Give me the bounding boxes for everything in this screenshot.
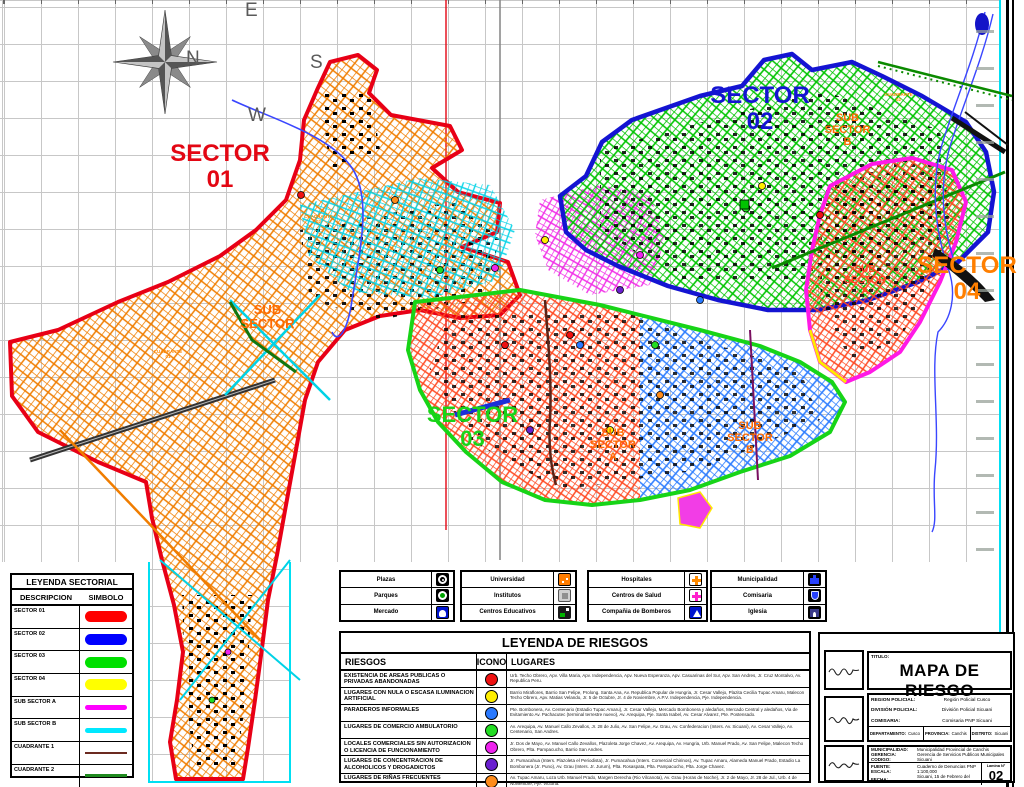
- plaza-icon: [432, 572, 453, 587]
- legend-row: SUB SECTOR B: [12, 719, 132, 742]
- risk-legend-title: LEYENDA DE RIESGOS: [341, 633, 809, 654]
- sector-02-symbol: [85, 634, 127, 645]
- col-riesgos: RIESGOS: [341, 654, 477, 669]
- col-icono: ICONO: [477, 654, 507, 669]
- legend-row: SECTOR 01: [12, 606, 132, 629]
- school-icon: [554, 605, 575, 620]
- risk-row: EXISTENCIA DE AREAS PUBLICAS O PRIVADAS …: [341, 671, 809, 688]
- legend-row: SUB SECTOR A: [12, 697, 132, 720]
- magenta-risk-icon: [485, 741, 498, 754]
- col-simbolo: SIMBOLO: [80, 590, 132, 604]
- provincia-label: PROVINCIA:: [925, 731, 950, 736]
- departamento-label: DEPARTAMENTO:: [870, 731, 906, 736]
- police-station-icon: [804, 588, 825, 603]
- purple-risk-icon: [485, 758, 498, 771]
- municipal-info-box: MUNICIPALIDAD:Municipalidad Provincial d…: [867, 745, 1012, 782]
- icon-legend-group-1: Plazas Parques Mercado: [339, 570, 455, 622]
- risk-row: LUGARES DE RIÑAS FRECUENTESAv. Tupac Ama…: [341, 774, 809, 787]
- legend-row: SECTOR 04: [12, 674, 132, 697]
- orange-risk-icon: [485, 775, 498, 787]
- provincia-value: Canchis: [952, 731, 967, 736]
- red-risk-icon: [485, 673, 498, 686]
- sub-sector-b-top-label: SUBSECTORB: [815, 112, 880, 148]
- signature-box-3: [824, 745, 864, 782]
- health-center-icon: [685, 588, 706, 603]
- departamento-value: Cusco: [908, 731, 920, 736]
- risk-row: LUGARES DE COMERCIO AMBULATORIOAv. Arequ…: [341, 722, 809, 739]
- region-label: REGION POLICIAL:: [869, 698, 924, 703]
- fecha-label: FECHA:: [869, 777, 917, 782]
- distrito-label: DISTRITO:: [972, 731, 993, 736]
- cuadrante-1-symbol: [85, 752, 127, 755]
- fire-station-icon: [685, 605, 706, 620]
- sub-sector-a-symbol: [85, 705, 127, 710]
- sector-01-label: SECTOR01: [155, 141, 285, 194]
- yellow-risk-icon: [485, 690, 498, 703]
- police-info-box: REGION POLICIAL:Región Policial Cusco DI…: [867, 693, 1012, 742]
- comisaria-label: COMISARIA:: [869, 719, 924, 724]
- cuadrante-2-symbol: [85, 774, 127, 777]
- region-value: Región Policial Cusco: [924, 698, 1010, 703]
- comisaria-value: Comisaria PNP Sicuani: [924, 719, 1010, 724]
- sector-01-symbol: [85, 611, 127, 622]
- tail-frame-right: [289, 562, 291, 783]
- map-sheet: E N S W SECTOR01 SECTOR02 SECTOR03 SECTO…: [0, 0, 1024, 787]
- map-grid-tail: [148, 562, 291, 783]
- compass-east-label: E: [245, 0, 258, 22]
- division-label: DIVISIÓN POLICIAL:: [869, 708, 924, 713]
- lamina-number: 02: [989, 769, 1003, 782]
- legend-row: CUADRANTE 1: [12, 742, 132, 765]
- risk-row: PARADEROS INFORMALESPte. Bombonera, Av. …: [341, 705, 809, 722]
- sub-sector-a-mid-label: SUBSECTORA: [578, 427, 648, 463]
- sub-sector-a-right-label: SUBSECTORA: [835, 264, 895, 297]
- compass-rose: [90, 0, 240, 125]
- cuadrante-01-label: CUADRANTE01: [143, 350, 193, 360]
- sector-03-symbol: [85, 657, 127, 668]
- blue-risk-icon: [485, 707, 498, 720]
- compass-south-label: S: [310, 52, 323, 74]
- hospital-icon: [685, 572, 706, 587]
- title-box: TITULO: MAPA DE RIESGO: [867, 651, 1012, 690]
- risk-row: LUGARES CON NULA O ESCASA ILUMINACION AR…: [341, 688, 809, 705]
- fecha-value: Sicuani, 15 de Febrero del 2024: [917, 774, 981, 784]
- compass-west-label: W: [248, 105, 266, 127]
- university-icon: [554, 572, 575, 587]
- tail-frame-bottom: [148, 781, 291, 783]
- institute-icon: [554, 588, 575, 603]
- sector-02-label: SECTOR02: [705, 83, 815, 136]
- division-value: División Policial Sicuani: [924, 708, 1010, 713]
- distrito-value: Sicuani: [994, 731, 1008, 736]
- sector-04-label: SECTOR04: [912, 253, 1022, 306]
- legend-row: SECTOR 02: [12, 629, 132, 652]
- icon-legend-group-4: Municipalidad Comisaria Iglesia: [710, 570, 827, 622]
- risk-row: LOCALES COMERCIALES SIN AUTORIZACION O L…: [341, 739, 809, 756]
- cuadrante-02-ne-label: CUADRANTE02: [876, 93, 921, 103]
- signature-box-2: [824, 696, 864, 742]
- park-icon: [432, 588, 453, 603]
- icon-legend-group-2: Universidad Institutos Centros Educativo…: [460, 570, 577, 622]
- sector-03-label: SECTOR03: [425, 403, 520, 451]
- green-risk-icon: [485, 724, 498, 737]
- sector-04-symbol: [85, 679, 127, 690]
- signature-box-1: [824, 650, 864, 690]
- sub-sector-b-symbol: [85, 728, 127, 733]
- cuadrante-02-label: CUADRANTE02: [296, 215, 341, 225]
- titulo-label: TITULO:: [869, 653, 1010, 659]
- col-descripcion: DESCRIPCION: [12, 590, 80, 604]
- risk-row: LUGARES DE CONCENTRACION DE ALCOHOLICOS …: [341, 756, 809, 773]
- compass-north-label: N: [186, 48, 200, 70]
- tail-frame-left: [148, 562, 150, 783]
- col-lugares: LUGARES: [507, 654, 809, 669]
- market-icon: [432, 605, 453, 620]
- icon-legend-group-3: Hospitales Centros de Salud Compañia de …: [587, 570, 708, 622]
- church-icon: [804, 605, 825, 620]
- sector-legend: LEYENDA SECTORIAL DESCRIPCION SIMBOLO SE…: [10, 573, 134, 778]
- town-hall-icon: [804, 572, 825, 587]
- sector-legend-title: LEYENDA SECTORIAL: [12, 575, 132, 590]
- sub-sector-left-label: SUBSECTOR: [230, 303, 305, 332]
- title-block: TITULO: MAPA DE RIESGO REGION POLICIAL:R…: [818, 632, 1015, 783]
- risk-legend: LEYENDA DE RIESGOS RIESGOS ICONO LUGARES…: [339, 631, 811, 783]
- legend-row: SECTOR 03: [12, 651, 132, 674]
- legend-row: CUADRANTE 2: [12, 765, 132, 787]
- sub-sector-b-mid-label: SUBSECTORB: [715, 420, 785, 456]
- sheet-number-cell: Lamina N° 02: [981, 763, 1010, 785]
